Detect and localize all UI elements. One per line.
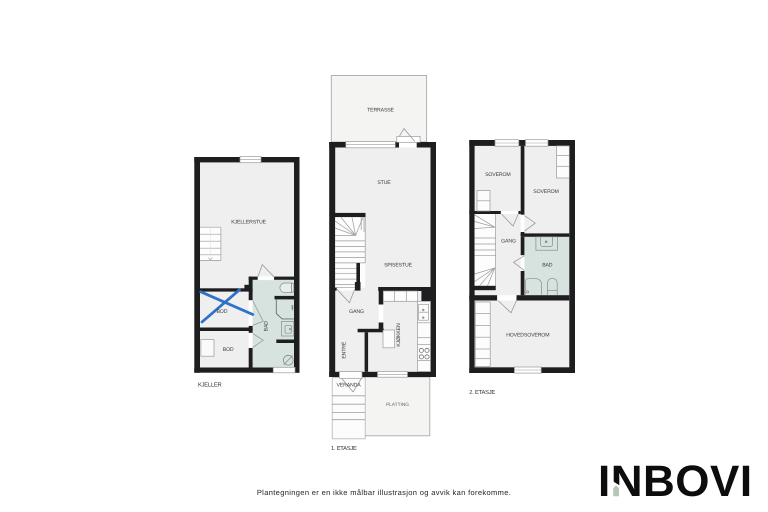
- svg-text:SOVEROM: SOVEROM: [533, 189, 558, 195]
- svg-text:BOD: BOD: [217, 309, 228, 315]
- svg-text:STUE: STUE: [377, 180, 391, 186]
- svg-text:KJØKKEN: KJØKKEN: [396, 323, 402, 347]
- svg-text:BAD: BAD: [264, 321, 270, 332]
- svg-text:Plantegningen er en ikke målba: Plantegningen er en ikke målbar illustra…: [257, 488, 511, 497]
- svg-text:SOVEROM: SOVEROM: [485, 172, 510, 178]
- svg-text:GANG: GANG: [349, 309, 364, 315]
- svg-text:TERRASSE: TERRASSE: [367, 108, 394, 114]
- svg-text:HOVEDSOVEROM: HOVEDSOVEROM: [506, 333, 549, 339]
- svg-text:KJELLER: KJELLER: [198, 383, 221, 389]
- svg-text:BOD: BOD: [223, 347, 234, 353]
- svg-text:VERANDA: VERANDA: [336, 383, 361, 389]
- svg-text:SPISESTUE: SPISESTUE: [384, 262, 412, 268]
- svg-text:ENTRÉ: ENTRÉ: [340, 341, 347, 359]
- svg-text:INBOVI: INBOVI: [598, 457, 753, 506]
- svg-text:GANG: GANG: [501, 239, 516, 245]
- svg-text:1. ETASJE: 1. ETASJE: [331, 445, 357, 452]
- svg-text:BAD: BAD: [542, 263, 553, 269]
- svg-text:PLATTING: PLATTING: [386, 402, 409, 408]
- svg-text:KJELLERSTUE: KJELLERSTUE: [231, 220, 266, 226]
- svg-text:2. ETASJE: 2. ETASJE: [469, 389, 495, 396]
